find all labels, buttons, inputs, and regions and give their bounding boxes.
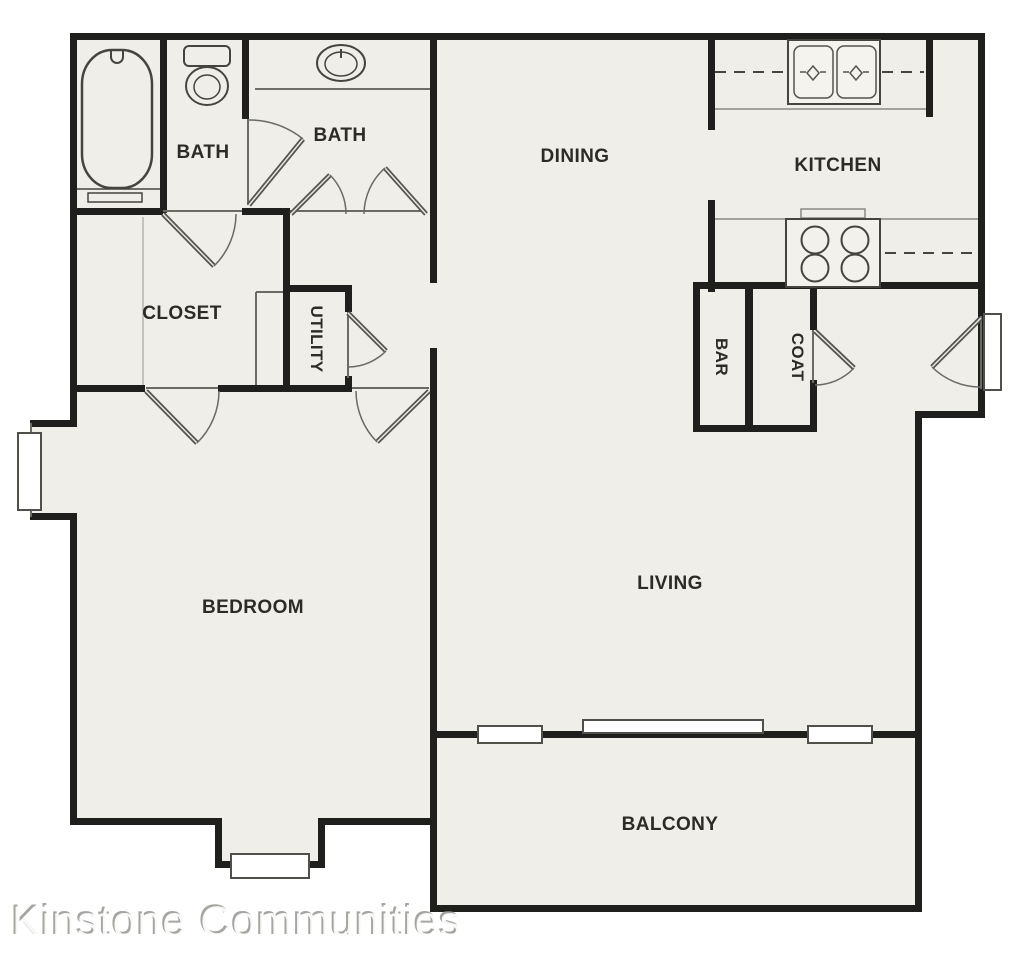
wall-bar-coat-divider: [745, 289, 753, 432]
label-living: LIVING: [637, 573, 703, 595]
kitchen-double-sink: [788, 40, 880, 104]
label-bar: BAR: [711, 338, 731, 376]
wall-fridge: [926, 33, 933, 117]
wall-hall-bottom-left: [70, 385, 145, 392]
wall-hall-bottom-right: [218, 385, 352, 392]
wall-kitchen-left-upper: [708, 33, 715, 130]
label-closet: CLOSET: [142, 303, 221, 325]
watermark-text: Kinstone Communities: [12, 898, 462, 947]
wall-bath1-right: [242, 33, 249, 119]
entry-door-leaf-closed: [984, 314, 1001, 390]
wall-coat-right-lower: [810, 380, 817, 432]
wall-bedroom-bottom-right: [325, 818, 437, 825]
wall-bedroom-bottom-left: [70, 818, 215, 825]
sliding-glass-door: [583, 720, 763, 733]
stove: [786, 219, 880, 287]
label-balcony: BALCONY: [622, 814, 719, 836]
label-coat: COAT: [787, 333, 807, 382]
bay-bottom-left-side: [215, 818, 222, 868]
wall-right-lower: [915, 411, 922, 912]
balcony-window-left: [478, 726, 542, 743]
wall-spine-lower: [430, 348, 437, 912]
bay-window-bottom: [231, 854, 309, 878]
label-bedroom: BEDROOM: [202, 597, 304, 619]
wall-utility-right-upper: [345, 285, 352, 312]
label-bath2: BATH: [314, 125, 367, 147]
wall-right-step: [915, 411, 985, 418]
bay-window-left: [18, 433, 41, 510]
wall-coat-right-upper: [810, 289, 817, 330]
wall-closets-bottom: [693, 425, 817, 432]
balcony-window-right: [808, 726, 872, 743]
bay-left-bottom: [30, 513, 77, 520]
floor-plan-drawing: [0, 0, 1024, 958]
wall-spine-upper: [430, 33, 437, 283]
wall-closet-utility: [283, 208, 290, 392]
label-utility: UTILITY: [306, 305, 326, 372]
wall-bar-left: [693, 289, 700, 432]
wall-utility-top: [283, 285, 352, 292]
floor-plan-image: BATH BATH DINING KITCHEN CLOSET UTILITY …: [0, 0, 1024, 958]
label-kitchen: KITCHEN: [794, 155, 881, 177]
wall-left-lower: [70, 520, 77, 825]
bay-bottom-right-side: [318, 818, 325, 868]
wall-bath1-bottom: [70, 208, 163, 215]
bay-left-top: [30, 420, 77, 427]
wall-left-upper: [70, 33, 77, 420]
wall-bath-divider: [160, 33, 167, 213]
wall-top: [70, 33, 985, 40]
label-dining: DINING: [541, 146, 610, 168]
label-bath1: BATH: [177, 142, 230, 164]
wall-kitchen-left-lower: [708, 200, 715, 292]
wall-vestibule-bottom: [242, 208, 290, 215]
wall-balcony-bottom: [430, 905, 922, 912]
